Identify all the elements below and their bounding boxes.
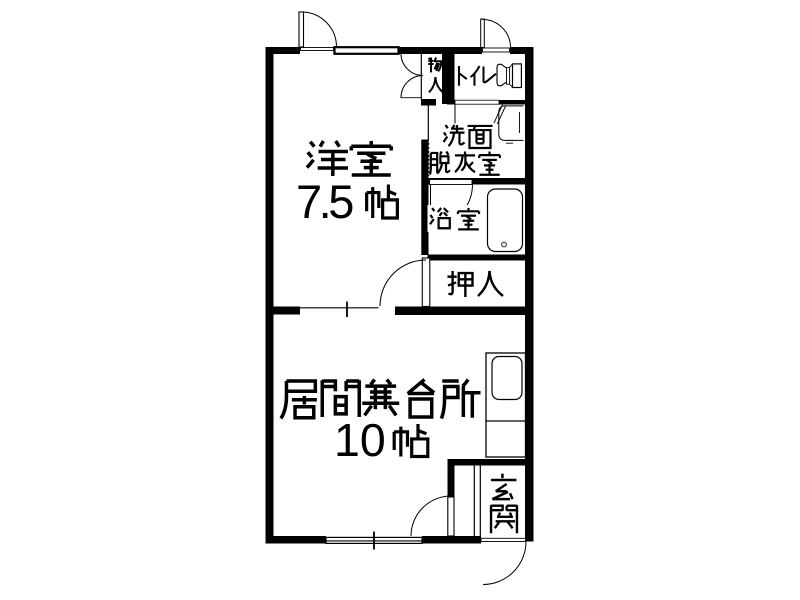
svg-text:10: 10 (334, 414, 386, 466)
svg-text:7.5: 7.5 (296, 175, 353, 228)
